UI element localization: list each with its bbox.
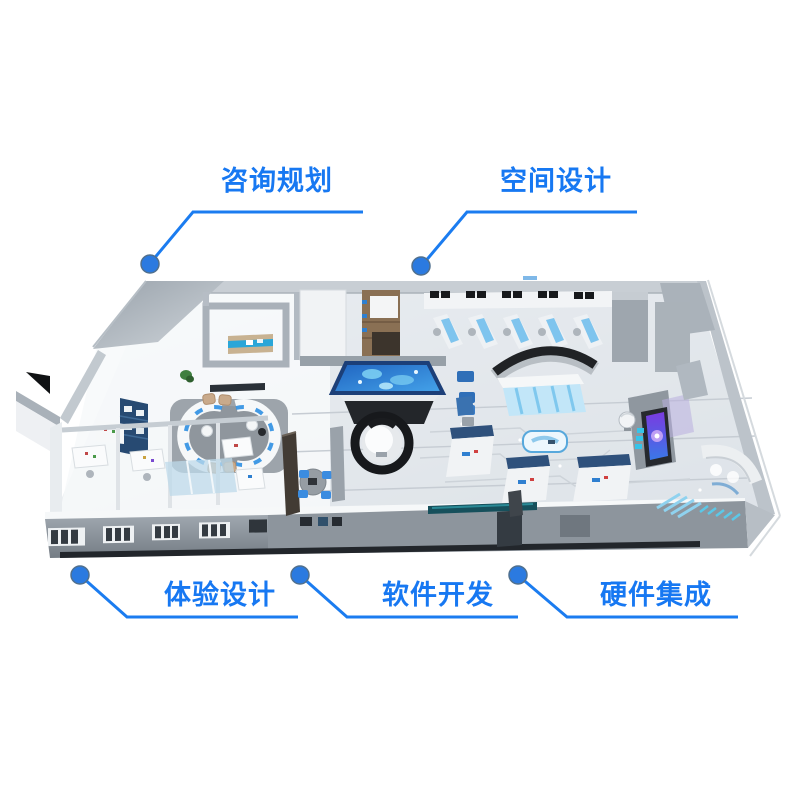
glass-partition (165, 458, 237, 496)
callout-dot (412, 257, 430, 275)
callout-label-consulting-planning: 咨询规划 (192, 167, 362, 195)
dome-theater (355, 416, 409, 470)
callout-label-hardware-integration: 硬件集成 (571, 581, 741, 609)
blue-cabinet (456, 396, 474, 416)
callout-label-space-design: 空间设计 (471, 167, 641, 195)
partition-wall-1 (612, 292, 648, 362)
wood-cabinet (362, 290, 400, 357)
callout-dot (141, 255, 159, 273)
top-wall (146, 281, 701, 293)
floorplan-render (0, 0, 800, 800)
callout-leader-consulting-planning (141, 212, 363, 273)
page: 咨询规划 空间设计 体验设计 软件开发 硬件集成 (0, 0, 800, 800)
illuminated-display (497, 374, 586, 416)
callout-dot (71, 566, 89, 584)
glow-table (523, 431, 567, 452)
exhibit-kiosk-1 (446, 425, 494, 477)
pillar (330, 426, 345, 502)
white-wall-block (300, 290, 346, 360)
dark-pillar-box (508, 490, 523, 517)
callout-label-software-development: 软件开发 (353, 581, 523, 609)
exhibit-kiosk-3 (573, 454, 631, 502)
dark-doorway (26, 372, 50, 394)
partition-wall-2 (655, 302, 690, 372)
callout-leader-space-design (412, 212, 637, 275)
callout-label-experience-design: 体验设计 (135, 581, 305, 609)
roof-vent (523, 276, 537, 280)
